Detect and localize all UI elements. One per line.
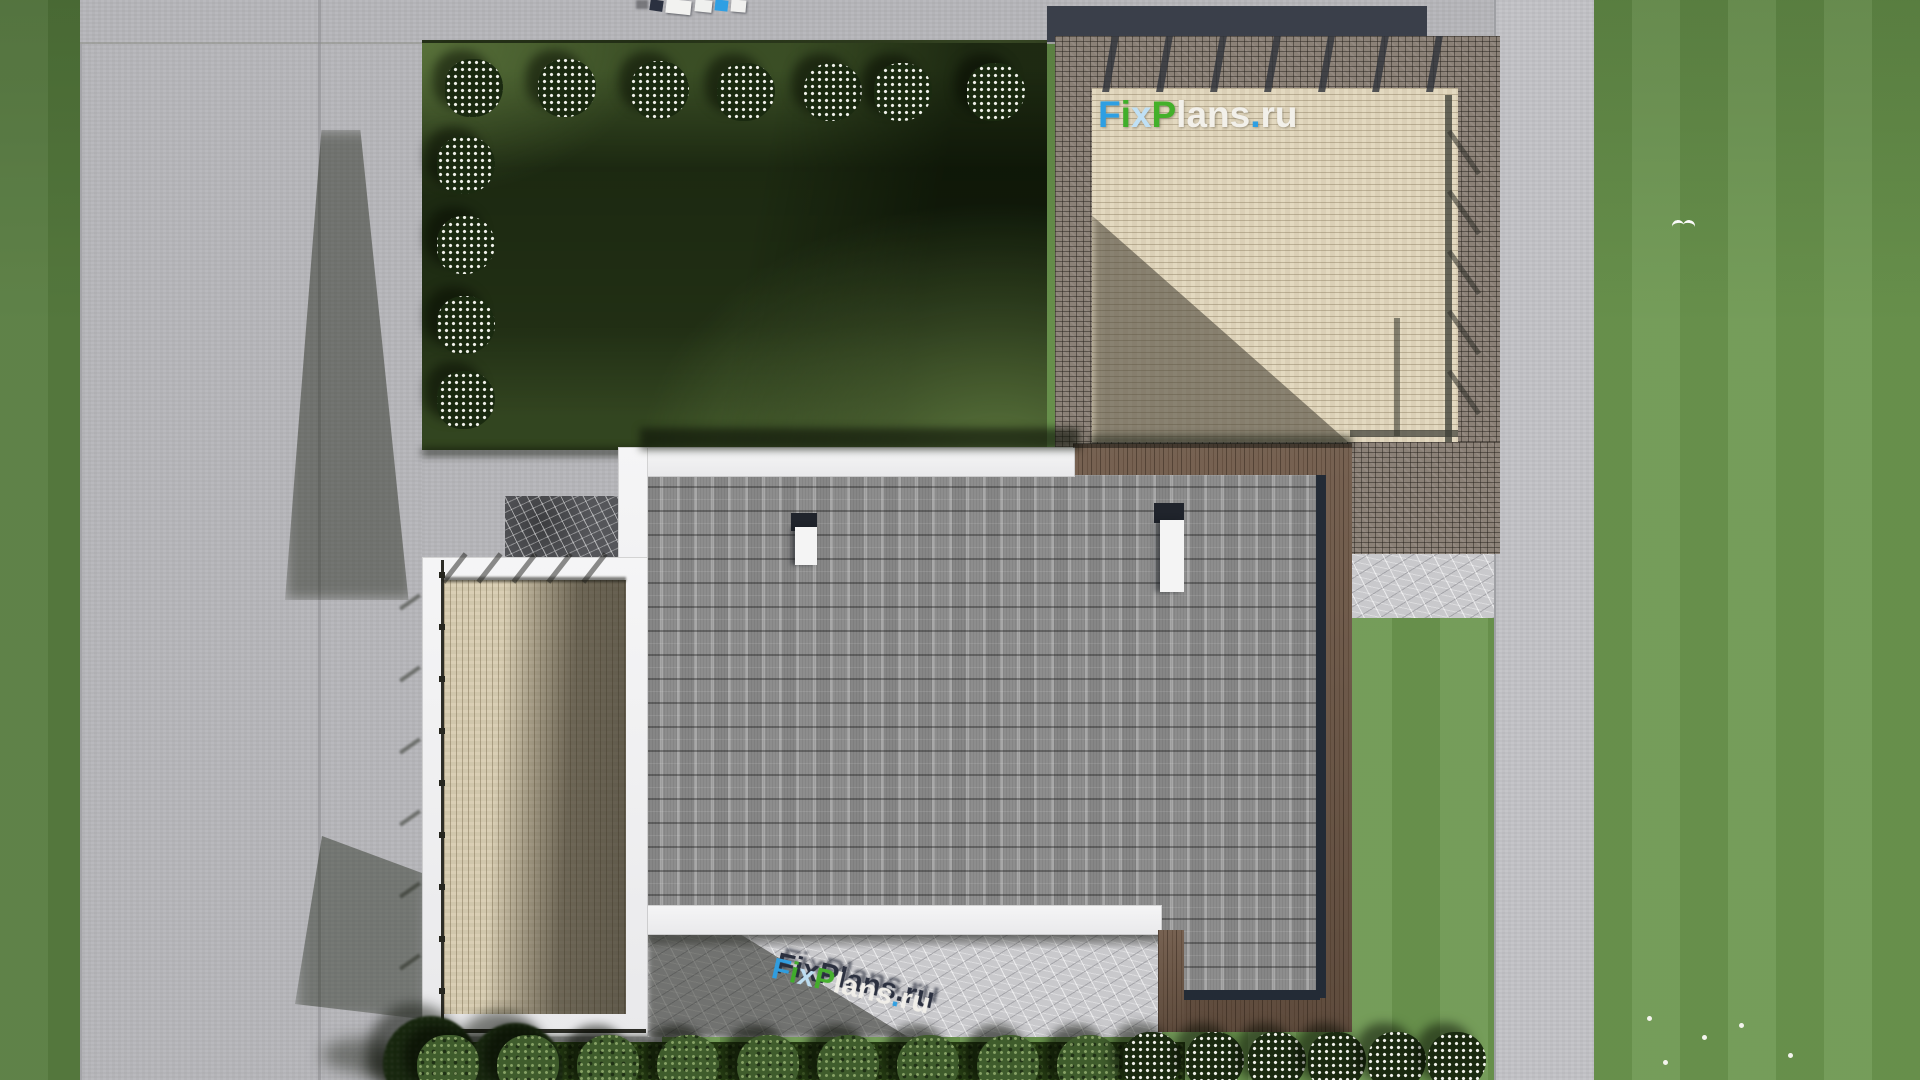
hedge-bush	[577, 1035, 639, 1080]
marble-paving-right	[1347, 554, 1494, 618]
house-top-shadow-seam	[640, 428, 1080, 450]
hedge-bush	[1057, 1035, 1119, 1080]
hedge-bush	[977, 1035, 1039, 1080]
logo-letter: s	[1230, 94, 1251, 135]
pergola-brick-extension	[1347, 442, 1500, 554]
flower-bush	[1428, 1032, 1486, 1080]
top-watermark-blue-block	[714, 0, 728, 12]
railing-post	[439, 832, 445, 838]
railing-post	[439, 884, 445, 890]
fixplans-logo-watermark: FixPlans.ru	[1098, 94, 1298, 136]
parapet-bottom	[618, 905, 1162, 935]
railing-post	[439, 936, 445, 942]
grass-left-strip	[0, 0, 80, 1080]
railing-post	[439, 780, 445, 786]
terrace-railing-left	[441, 560, 444, 1034]
grass-flower-dot	[1739, 1023, 1744, 1028]
hedge-bush	[817, 1035, 879, 1080]
logo-letter: i	[1121, 94, 1131, 135]
roof-gutter-bottom	[1160, 990, 1320, 1000]
walnut-strip-patio	[1158, 930, 1184, 1032]
logo-letter: r	[1260, 94, 1274, 135]
top-watermark-white-block-2	[694, 0, 712, 13]
pergola-post-shadow-v	[1394, 318, 1400, 436]
railing-post	[439, 624, 445, 630]
logo-letter: n	[1207, 94, 1230, 135]
top-watermark-dark-block	[649, 0, 663, 12]
grass-flower-dot	[1663, 1060, 1668, 1065]
logo-letter: l	[1176, 94, 1186, 135]
flower-bush	[1186, 1032, 1244, 1080]
walnut-top-seam	[1073, 443, 1352, 448]
terrace-deck-shadow	[444, 580, 626, 1014]
logo-letter: F	[1098, 94, 1121, 135]
hedge-bush	[657, 1035, 719, 1080]
grass-flower-dot	[1702, 1035, 1707, 1040]
roof-gutter-right	[1316, 475, 1326, 998]
logo-letter: a	[1186, 94, 1207, 135]
logo-letter: .	[1250, 94, 1260, 135]
pergola-inner-beam-right	[1445, 95, 1452, 442]
railing-post	[439, 676, 445, 682]
hedge-bush	[897, 1035, 959, 1080]
site-plan-render: FixPlans.ru FixPlans.ru	[0, 0, 1920, 1080]
logo-letter: u	[1275, 94, 1298, 135]
logo-letter: P	[1151, 94, 1176, 135]
railing-post	[439, 572, 445, 578]
top-watermark-white-block-1	[665, 0, 691, 15]
parapet-top	[618, 447, 1075, 477]
pergola-inner-beam-bottom	[1350, 430, 1458, 437]
hedge-bush	[497, 1035, 559, 1080]
railing-post	[439, 728, 445, 734]
grass-flower-dot	[1788, 1053, 1793, 1058]
logo-letter: x	[1131, 94, 1152, 135]
flower-bush	[1248, 1032, 1306, 1080]
flower-bush	[1123, 1032, 1181, 1080]
chimney-2	[1160, 520, 1184, 592]
flower-bush	[1308, 1032, 1366, 1080]
grass-flower-dot	[1647, 1016, 1652, 1021]
hedge-bush	[737, 1035, 799, 1080]
hedge-bush	[417, 1035, 479, 1080]
railing-post	[439, 988, 445, 994]
top-watermark-shadow	[636, 0, 648, 9]
road-right	[1494, 0, 1594, 1080]
lawn-edge-shadow	[422, 448, 648, 456]
flying-bird	[1672, 218, 1698, 230]
terrace-step-shadow	[444, 577, 626, 582]
flower-bush	[1368, 1032, 1426, 1080]
chimney-1	[795, 527, 817, 565]
top-watermark-white-block-3	[731, 0, 747, 13]
